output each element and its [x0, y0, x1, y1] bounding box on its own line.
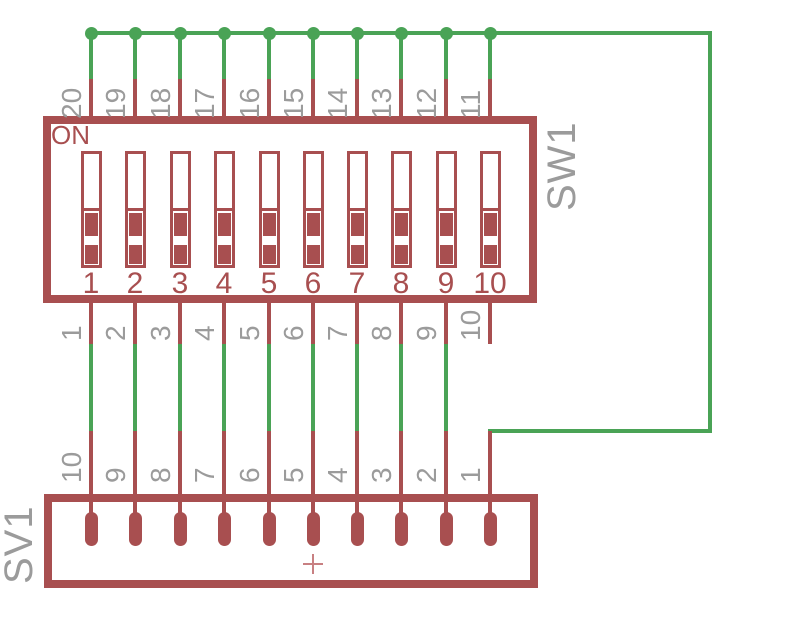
- sv1-pin-label: 3: [367, 467, 397, 483]
- sw1-switch-slot: [263, 236, 276, 245]
- net-column-top-wire[interactable]: [222, 33, 226, 79]
- sv1-ref-label: SV1: [3, 505, 35, 584]
- schematic-canvas: ON SW1 SV1 20111019229183381744716556156…: [0, 0, 796, 634]
- sw1-bottom-pin-label: 6: [279, 325, 309, 341]
- sw1-top-pin[interactable]: [355, 79, 359, 120]
- sw1-top-pin[interactable]: [178, 79, 182, 120]
- sw1-position-label: 2: [113, 269, 157, 299]
- net-column-mid-wire[interactable]: [444, 344, 448, 431]
- sw1-switch-divider: [259, 208, 280, 211]
- sw1-switch-slot: [218, 236, 231, 245]
- sv1-pin-pad[interactable]: [85, 512, 98, 546]
- sw1-switch-slot: [395, 236, 408, 245]
- sw1-bottom-pin-label: 8: [367, 325, 397, 341]
- net-column-mid-wire[interactable]: [355, 344, 359, 431]
- sw1-position-label: 4: [202, 269, 246, 299]
- sw1-bottom-pin-label: 7: [323, 325, 353, 341]
- sw1-top-pin[interactable]: [444, 79, 448, 120]
- sw1-position-label: 7: [335, 269, 379, 299]
- net-column-top-wire[interactable]: [89, 33, 93, 79]
- sw1-bottom-pin-label: 3: [146, 325, 176, 341]
- sw1-top-pin[interactable]: [311, 79, 315, 120]
- sw1-position-label: 3: [158, 269, 202, 299]
- sv1-pin-pad[interactable]: [351, 512, 364, 546]
- sw1-switch-divider: [480, 208, 501, 211]
- sw1-top-pin-label: 17: [190, 88, 220, 119]
- sw1-top-pin-label: 16: [235, 88, 265, 119]
- sw1-top-pin-label: 14: [323, 88, 353, 119]
- sw1-top-pin-label: 15: [279, 88, 309, 119]
- sw1-bottom-pin[interactable]: [444, 300, 448, 344]
- sv1-pin-label: 5: [279, 467, 309, 483]
- sw1-position-label: 8: [379, 269, 423, 299]
- sw1-top-pin-label: 18: [146, 88, 176, 119]
- sw1-bottom-pin[interactable]: [355, 300, 359, 344]
- net-column-mid-wire[interactable]: [89, 344, 93, 431]
- sw1-switch-divider: [303, 208, 324, 211]
- sw1-bottom-pin-label: 5: [235, 325, 265, 341]
- net-column-mid-wire[interactable]: [267, 344, 271, 431]
- net-bus-bottom-wire[interactable]: [488, 429, 712, 433]
- net-column-top-wire[interactable]: [355, 33, 359, 79]
- net-column-top-wire[interactable]: [133, 33, 137, 79]
- sv1-pin-label: 7: [190, 467, 220, 483]
- sv1-pin[interactable]: [488, 431, 492, 514]
- sv1-pin-pad[interactable]: [484, 512, 497, 546]
- sv1-pin-label: 2: [412, 467, 442, 483]
- sv1-pin-label: 10: [57, 452, 87, 483]
- sw1-position-label: 9: [424, 269, 468, 299]
- sw1-bottom-pin-label: 10: [456, 310, 486, 341]
- sw1-switch-divider: [170, 208, 191, 211]
- sv1-pin[interactable]: [311, 431, 315, 514]
- sw1-switch-slot: [85, 236, 98, 245]
- sv1-pin-label: 6: [235, 467, 265, 483]
- net-column-mid-wire[interactable]: [178, 344, 182, 431]
- sw1-top-pin[interactable]: [488, 79, 492, 120]
- sw1-bottom-pin-label: 4: [190, 325, 220, 341]
- sw1-top-pin[interactable]: [222, 79, 226, 120]
- sv1-pin[interactable]: [267, 431, 271, 514]
- sw1-switch-slot: [351, 236, 364, 245]
- sw1-switch-divider: [391, 208, 412, 211]
- sw1-bottom-pin[interactable]: [488, 300, 492, 344]
- net-column-top-wire[interactable]: [444, 33, 448, 79]
- sw1-position-label: 5: [247, 269, 291, 299]
- sw1-switch-divider: [125, 208, 146, 211]
- sw1-top-pin[interactable]: [89, 79, 93, 120]
- net-column-top-wire[interactable]: [488, 33, 492, 79]
- net-column-mid-wire[interactable]: [311, 344, 315, 431]
- sw1-bottom-pin[interactable]: [133, 300, 137, 344]
- sv1-pin[interactable]: [89, 431, 93, 514]
- sv1-origin-cross-icon: [312, 554, 314, 574]
- sv1-pin[interactable]: [399, 431, 403, 514]
- sv1-pin[interactable]: [444, 431, 448, 514]
- sw1-bottom-pin[interactable]: [267, 300, 271, 344]
- sv1-pin-pad[interactable]: [263, 512, 276, 546]
- sw1-top-pin-label: 11: [456, 90, 486, 119]
- sw1-bottom-pin[interactable]: [89, 300, 93, 344]
- sv1-pin[interactable]: [133, 431, 137, 514]
- net-column-top-wire[interactable]: [267, 33, 271, 79]
- sw1-switch-divider: [214, 208, 235, 211]
- sw1-bottom-pin-label: 1: [57, 325, 87, 341]
- net-column-mid-wire[interactable]: [222, 344, 226, 431]
- sw1-top-pin-label: 13: [367, 88, 397, 119]
- sw1-top-pin-label: 20: [57, 88, 87, 119]
- sv1-pin-label: 8: [146, 467, 176, 483]
- sv1-pin-label: 1: [456, 467, 486, 483]
- net-column-top-wire[interactable]: [311, 33, 315, 79]
- sv1-pin-pad[interactable]: [174, 512, 187, 546]
- sv1-pin-label: 9: [101, 467, 131, 483]
- net-column-top-wire[interactable]: [178, 33, 182, 79]
- sw1-switch-divider: [436, 208, 457, 211]
- sw1-bottom-pin[interactable]: [399, 300, 403, 344]
- sv1-pin[interactable]: [222, 431, 226, 514]
- sw1-switch-divider: [347, 208, 368, 211]
- sv1-pin-pad[interactable]: [307, 512, 320, 546]
- sw1-bottom-pin[interactable]: [311, 300, 315, 344]
- sv1-pin-pad[interactable]: [129, 512, 142, 546]
- sv1-pin[interactable]: [355, 431, 359, 514]
- sw1-top-pin[interactable]: [399, 79, 403, 120]
- sw1-top-pin-label: 12: [412, 88, 442, 119]
- sv1-pin-pad[interactable]: [395, 512, 408, 546]
- sw1-switch-slot: [484, 236, 497, 245]
- sw1-on-label: ON: [51, 122, 90, 148]
- sw1-top-pin[interactable]: [267, 79, 271, 120]
- sw1-ref-label: SW1: [546, 121, 578, 211]
- sv1-body[interactable]: [44, 494, 538, 588]
- sw1-bottom-pin[interactable]: [222, 300, 226, 344]
- net-column-mid-wire[interactable]: [133, 344, 137, 431]
- sv1-pin-pad[interactable]: [440, 512, 453, 546]
- sw1-switch-slot: [307, 236, 320, 245]
- sv1-pin[interactable]: [178, 431, 182, 514]
- sw1-position-label: 10: [468, 269, 512, 299]
- sv1-pin-pad[interactable]: [218, 512, 231, 546]
- sw1-switch-slot: [440, 236, 453, 245]
- sv1-pin-label: 4: [323, 467, 353, 483]
- sw1-switch-slot: [129, 236, 142, 245]
- sw1-bottom-pin[interactable]: [178, 300, 182, 344]
- sw1-bottom-pin-label: 2: [101, 325, 131, 341]
- sw1-bottom-pin-label: 9: [412, 325, 442, 341]
- net-column-mid-wire[interactable]: [399, 344, 403, 431]
- sw1-position-label: 6: [291, 269, 335, 299]
- sw1-top-pin-label: 19: [101, 88, 131, 119]
- net-column-top-wire[interactable]: [399, 33, 403, 79]
- net-bus-right-wire[interactable]: [708, 31, 712, 433]
- sw1-switch-divider: [81, 208, 102, 211]
- sw1-position-label: 1: [69, 269, 113, 299]
- sw1-switch-slot: [174, 236, 187, 245]
- sw1-top-pin[interactable]: [133, 79, 137, 120]
